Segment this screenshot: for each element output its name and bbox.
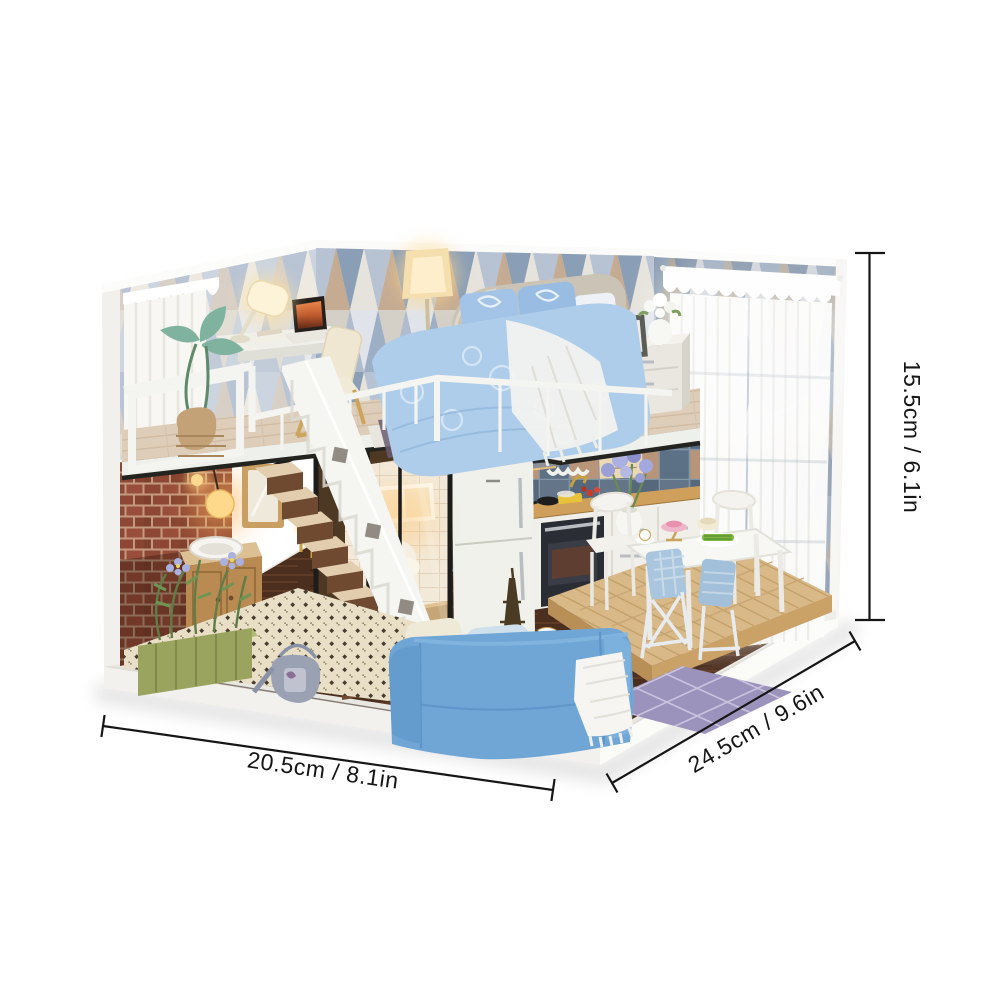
width-label: 20.5cm / 8.1in: [246, 746, 401, 793]
left-wall-outer-edge: [102, 281, 120, 667]
sink-basin: [557, 491, 575, 498]
sofa-armrest-left: [389, 646, 421, 744]
dollhouse-illustration: 15.5cm / 6.1in 20.5cm / 8.1in 24.5cm / 9…: [0, 0, 1000, 1000]
wall-lamp: [206, 490, 234, 518]
height-label: 15.5cm / 6.1in: [899, 361, 925, 514]
product-image: 15.5cm / 6.1in 20.5cm / 8.1in 24.5cm / 9…: [0, 0, 1000, 1000]
fridge: [452, 457, 535, 640]
